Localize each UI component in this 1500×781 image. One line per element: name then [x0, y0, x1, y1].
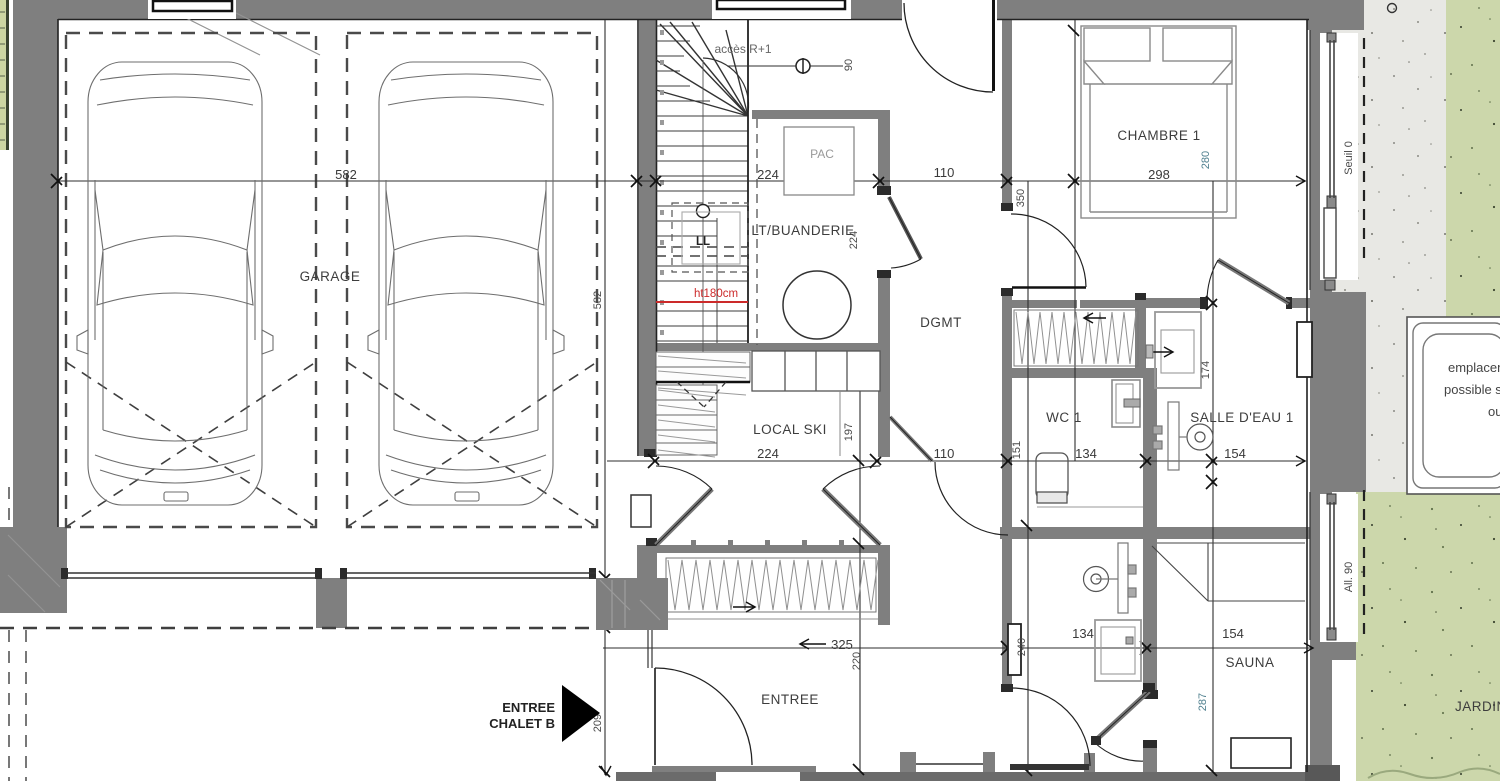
svg-text:90: 90 — [843, 59, 855, 71]
svg-text:DGMT: DGMT — [920, 315, 962, 330]
svg-text:110: 110 — [934, 446, 955, 461]
svg-text:134: 134 — [1072, 626, 1094, 641]
svg-text:SAUNA: SAUNA — [1225, 655, 1274, 670]
svg-text:280: 280 — [1200, 151, 1212, 169]
svg-text:151: 151 — [1011, 441, 1023, 459]
svg-text:LT/BUANDERIE: LT/BUANDERIE — [751, 223, 854, 238]
svg-text:110: 110 — [934, 165, 955, 180]
svg-text:ENTREE: ENTREE — [761, 692, 819, 707]
svg-text:JARDIN D: JARDIN D — [1455, 699, 1500, 714]
svg-text:WC 1: WC 1 — [1046, 410, 1082, 425]
svg-text:ht180cm: ht180cm — [694, 288, 738, 300]
svg-text:174: 174 — [1200, 361, 1212, 379]
svg-text:154: 154 — [1224, 446, 1246, 461]
svg-text:224: 224 — [757, 446, 779, 461]
svg-text:CHALET B: CHALET B — [489, 716, 555, 731]
svg-text:Seuil 0: Seuil 0 — [1343, 141, 1355, 175]
svg-text:240: 240 — [1016, 638, 1028, 656]
svg-text:LL: LL — [696, 236, 710, 248]
svg-text:ENTREE: ENTREE — [502, 700, 555, 715]
svg-text:PAC: PAC — [810, 147, 834, 161]
svg-text:154: 154 — [1222, 626, 1244, 641]
svg-text:ou: ou — [1488, 404, 1500, 419]
svg-text:325: 325 — [831, 637, 853, 652]
svg-text:All. 90: All. 90 — [1343, 562, 1355, 593]
svg-text:220: 220 — [851, 652, 863, 670]
svg-text:582: 582 — [335, 167, 357, 182]
svg-text:197: 197 — [843, 423, 855, 441]
svg-text:possible s: possible s — [1444, 382, 1500, 397]
svg-text:accès R+1: accès R+1 — [714, 42, 771, 56]
svg-text:350: 350 — [1015, 189, 1027, 207]
svg-text:SALLE D'EAU 1: SALLE D'EAU 1 — [1190, 410, 1294, 425]
svg-text:582: 582 — [592, 291, 604, 309]
svg-text:LOCAL SKI: LOCAL SKI — [753, 422, 827, 437]
svg-text:224: 224 — [848, 231, 860, 249]
svg-text:224: 224 — [757, 167, 779, 182]
svg-text:CHAMBRE 1: CHAMBRE 1 — [1117, 128, 1200, 143]
svg-text:GARAGE: GARAGE — [300, 269, 361, 284]
svg-text:emplacement: emplacement — [1448, 360, 1500, 375]
svg-text:298: 298 — [1148, 167, 1170, 182]
svg-text:287: 287 — [1197, 693, 1209, 711]
svg-text:134: 134 — [1075, 446, 1097, 461]
